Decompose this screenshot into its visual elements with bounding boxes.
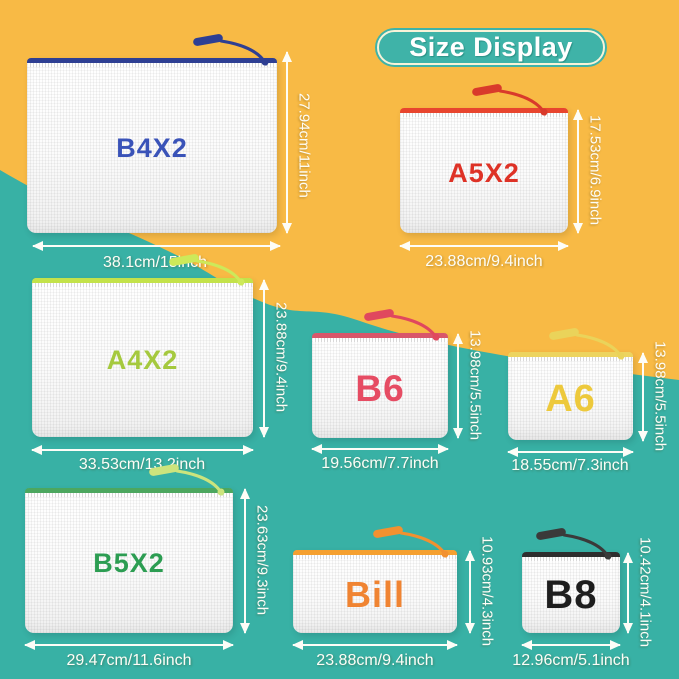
size-display-badge-border: Size Display bbox=[377, 30, 605, 65]
pouch-label: B6 bbox=[355, 368, 404, 410]
width-dimension-label: 23.88cm/9.4inch bbox=[384, 253, 584, 271]
pouch-b8: B8 bbox=[522, 552, 620, 633]
height-arrow bbox=[244, 489, 246, 633]
height-arrow bbox=[263, 280, 265, 437]
pouch-label: B8 bbox=[544, 573, 597, 618]
zipper-pull-icon bbox=[525, 325, 625, 359]
zipper-pull-icon bbox=[349, 523, 449, 557]
pouch-label: A6 bbox=[545, 378, 596, 421]
width-dimension-label: 12.96cm/5.1inch bbox=[471, 652, 671, 670]
height-dimension-label: 23.63cm/9.3inch bbox=[250, 488, 274, 633]
pouch-b5x2: B5X2 bbox=[25, 488, 233, 633]
page-title: Size Display bbox=[409, 32, 573, 63]
height-arrow bbox=[627, 553, 629, 633]
height-dimension-label: 10.42cm/4.1inch bbox=[633, 552, 657, 633]
zipper-pull-icon bbox=[512, 525, 612, 559]
height-dimension-label: 23.88cm/9.4inch bbox=[269, 278, 293, 437]
zipper-pull-icon bbox=[169, 31, 269, 65]
height-dimension-label: 17.53cm/6.9inch bbox=[583, 108, 607, 233]
pouch-b4x2: B4X2 bbox=[27, 58, 277, 233]
pouch-label: A5X2 bbox=[448, 158, 520, 189]
width-arrow bbox=[508, 451, 633, 453]
pouch-a4x2: A4X2 bbox=[32, 278, 253, 437]
width-arrow bbox=[312, 448, 448, 450]
pouch-b6: B6 bbox=[312, 333, 448, 438]
height-arrow bbox=[642, 353, 644, 441]
size-display-badge: Size Display bbox=[375, 28, 607, 67]
pouch-label: Bill bbox=[345, 574, 405, 616]
zipper-pull-icon bbox=[448, 81, 548, 115]
size-display-infographic: Size Display B4X2 27.94cm/11inch 38.1cm/… bbox=[0, 0, 679, 679]
pouch-a6: A6 bbox=[508, 352, 633, 440]
zipper-pull-icon bbox=[340, 306, 440, 340]
pouch-label: A4X2 bbox=[107, 345, 179, 376]
height-arrow bbox=[577, 110, 579, 233]
width-arrow bbox=[400, 245, 568, 247]
pouch-a5x2: A5X2 bbox=[400, 108, 568, 233]
width-arrow bbox=[293, 644, 457, 646]
height-dimension-label: 13.98cm/5.5inch bbox=[648, 352, 672, 440]
width-arrow bbox=[32, 449, 253, 451]
height-dimension-label: 27.94cm/11inch bbox=[292, 58, 316, 233]
width-arrow bbox=[25, 644, 233, 646]
width-dimension-label: 23.88cm/9.4inch bbox=[275, 652, 475, 670]
pouch-bill: Bill bbox=[293, 550, 457, 633]
width-dimension-label: 18.55cm/7.3inch bbox=[470, 457, 670, 475]
zipper-pull-icon bbox=[125, 461, 225, 495]
height-arrow bbox=[469, 551, 471, 633]
height-dimension-label: 10.93cm/4.3inch bbox=[475, 550, 499, 633]
height-dimension-label: 13.98cm/5.5inch bbox=[463, 333, 487, 438]
width-dimension-label: 29.47cm/11.6inch bbox=[29, 652, 229, 670]
width-dimension-label: 19.56cm/7.7inch bbox=[280, 455, 480, 473]
height-arrow bbox=[286, 52, 288, 233]
width-arrow bbox=[33, 245, 280, 247]
width-arrow bbox=[522, 644, 620, 646]
pouch-label: B4X2 bbox=[116, 133, 188, 164]
pouch-label: B5X2 bbox=[93, 548, 165, 579]
height-arrow bbox=[457, 334, 459, 438]
zipper-pull-icon bbox=[145, 251, 245, 285]
